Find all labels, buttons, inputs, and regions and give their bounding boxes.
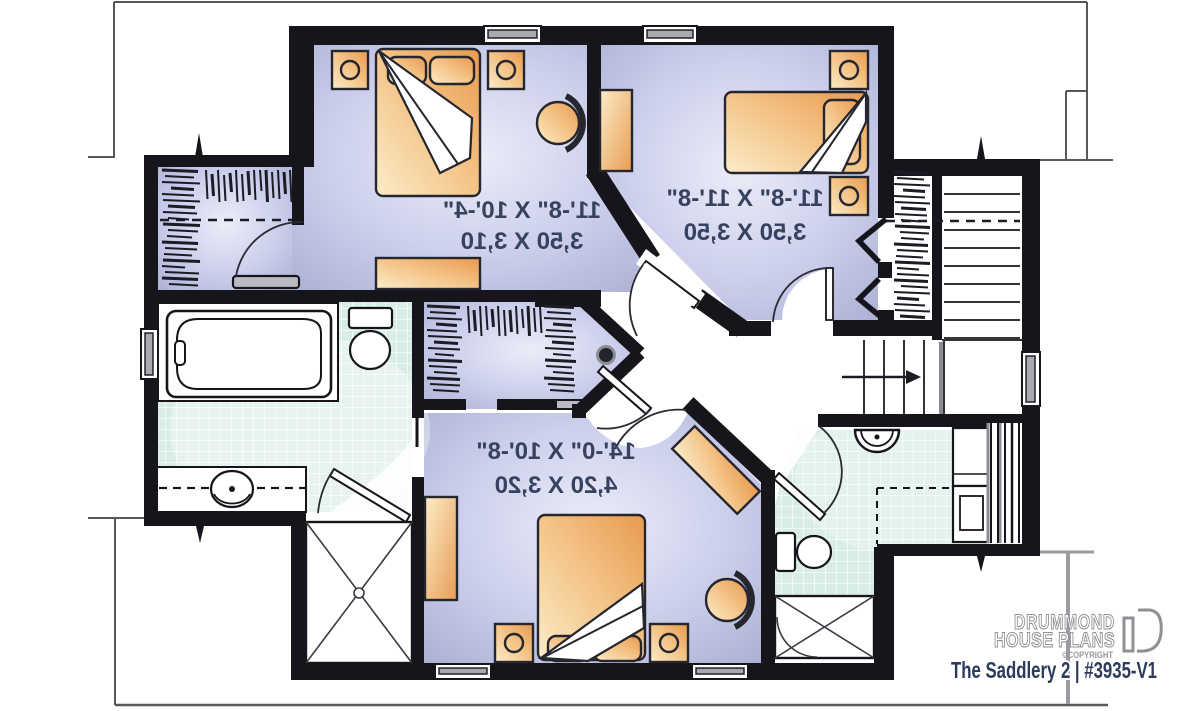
svg-text:14'-0" X 10'-8": 14'-0" X 10'-8" [476,438,636,465]
svg-text:3,50 X 3,50: 3,50 X 3,50 [684,219,807,246]
svg-text:11'-8" X 10'-4": 11'-8" X 10'-4" [443,197,601,224]
svg-text:11'-8" X 11'-8": 11'-8" X 11'-8" [667,185,824,212]
svg-text:HOUSE PLANS: HOUSE PLANS [994,629,1115,652]
svg-text:The Saddlery 2 | #3935-V1: The Saddlery 2 | #3935-V1 [951,657,1157,683]
svg-text:4,20 X 3,20: 4,20 X 3,20 [495,472,618,499]
svg-text:3,50 X 3,10: 3,50 X 3,10 [461,228,584,255]
